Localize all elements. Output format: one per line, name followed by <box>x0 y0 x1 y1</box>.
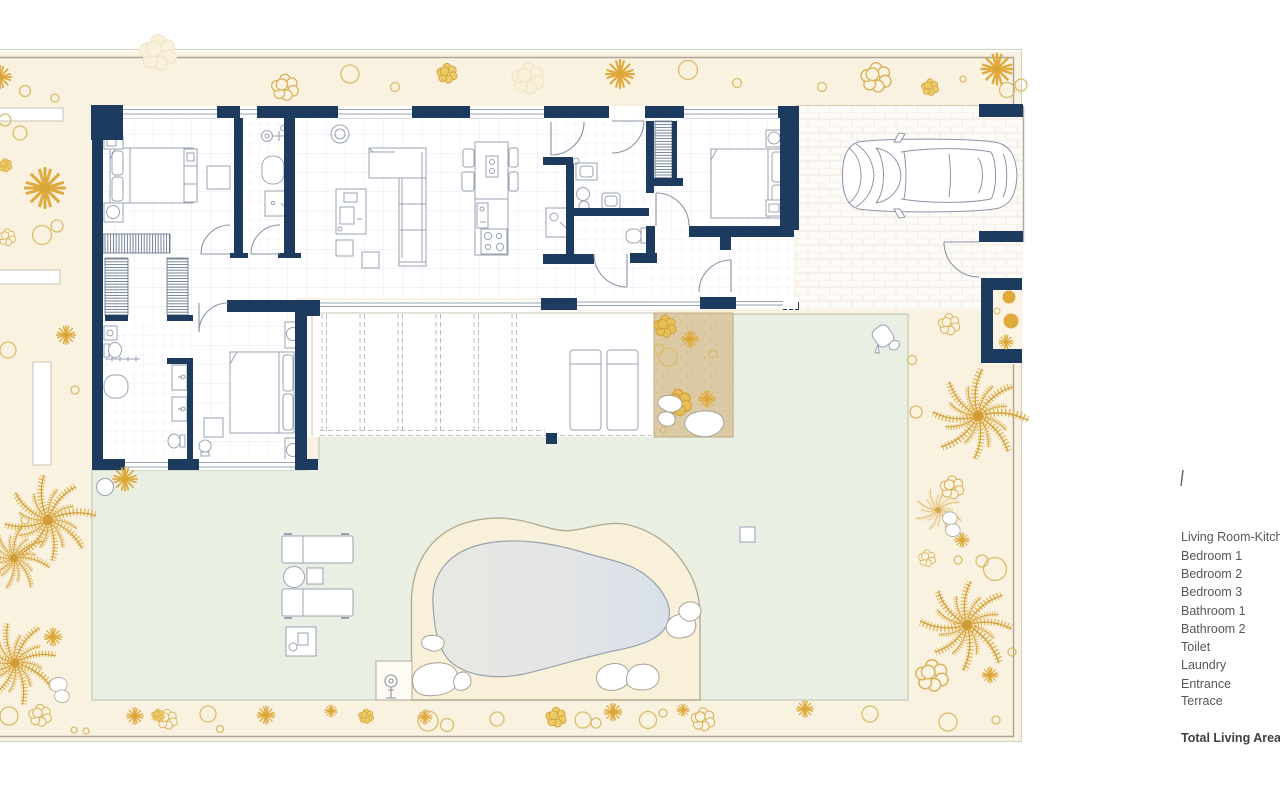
svg-text:Bathroom 1: Bathroom 1 <box>1181 604 1246 618</box>
svg-text:Bedroom 2: Bedroom 2 <box>1181 567 1242 581</box>
svg-text:Toilet: Toilet <box>1181 640 1211 654</box>
svg-text:Bathroom 2: Bathroom 2 <box>1181 622 1246 636</box>
svg-text:Laundry: Laundry <box>1181 658 1227 672</box>
svg-text:Bedroom 1: Bedroom 1 <box>1181 549 1242 563</box>
svg-text:Living Room-Kitchen: Living Room-Kitchen <box>1181 530 1280 544</box>
svg-text:Bedroom 3: Bedroom 3 <box>1181 585 1242 599</box>
svg-text:Terrace: Terrace <box>1181 694 1223 708</box>
svg-text:Total Living Area: Total Living Area <box>1181 731 1280 745</box>
svg-text:Entrance: Entrance <box>1181 677 1231 691</box>
